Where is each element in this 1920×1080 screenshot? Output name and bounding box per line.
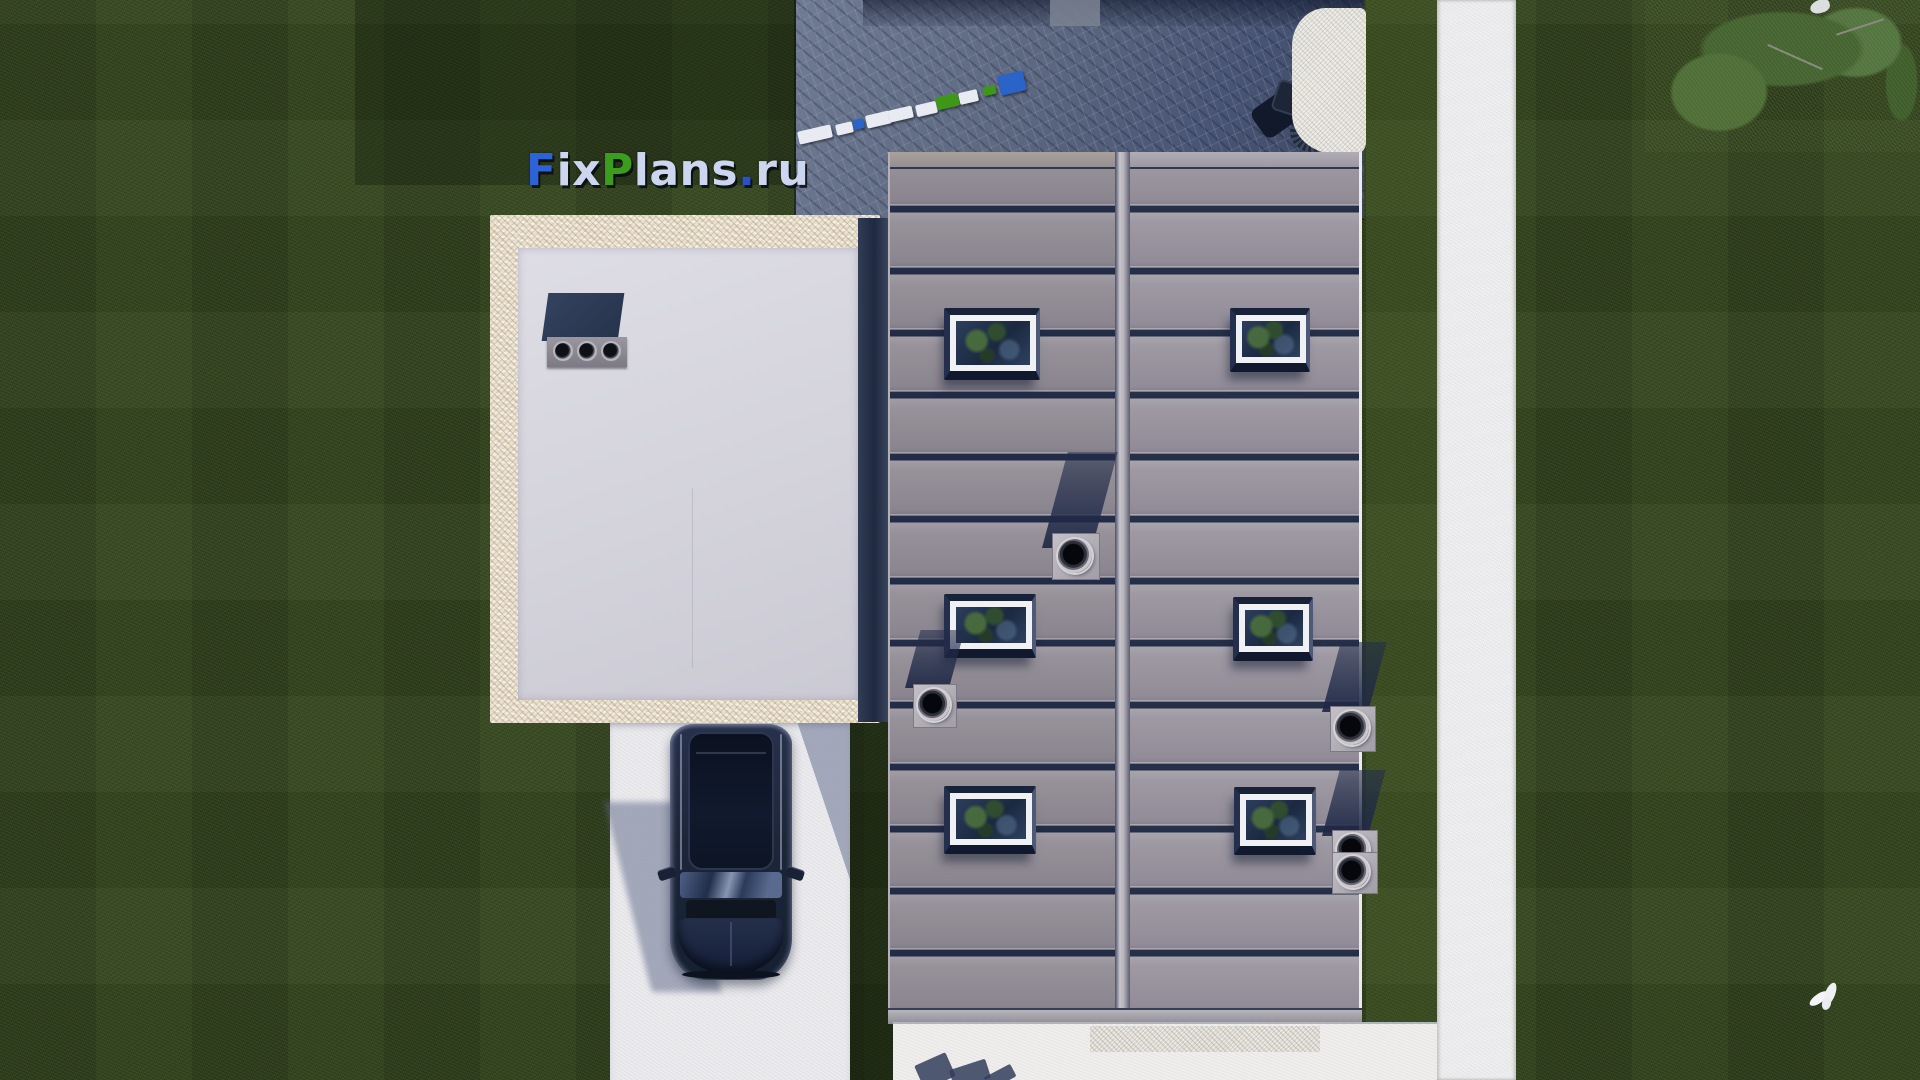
patio-shade-band	[863, 0, 1364, 26]
skylight	[1234, 787, 1316, 855]
flying-bird-icon	[1808, 982, 1854, 1018]
garden-path	[1437, 0, 1516, 1080]
paver-block	[835, 121, 854, 136]
vent-pipe	[1058, 539, 1092, 573]
car-windshield	[680, 872, 782, 898]
gravel-bed	[1292, 8, 1366, 154]
roof-ridge-divider	[1115, 152, 1130, 1008]
vent-pipe	[1335, 711, 1369, 745]
paver-block	[935, 93, 960, 111]
terrace-shadow	[914, 1052, 956, 1080]
terrace	[893, 1022, 1437, 1080]
garage-flat-roof	[490, 215, 880, 723]
vent-pipe	[918, 689, 950, 721]
watermark-logo: FixPlans.ru	[526, 149, 809, 193]
skylight-glass	[1246, 800, 1306, 840]
paver-block	[915, 101, 938, 117]
paver-block	[852, 118, 865, 130]
paver-block	[958, 89, 979, 105]
skylight	[1233, 597, 1313, 661]
aerial-house-render: FixPlans.ru	[0, 0, 1920, 1080]
garden-tree	[1645, 0, 1920, 152]
vent-pipe	[1337, 856, 1369, 888]
terrace-gravel-strip	[1090, 1026, 1320, 1052]
skylight-glass	[1245, 610, 1303, 646]
paver-block	[888, 105, 914, 122]
grass-shade-strip	[850, 722, 893, 1080]
watermark-part: ix	[557, 145, 601, 196]
watermark-part: ru	[755, 145, 809, 196]
skylight-glass	[956, 799, 1026, 839]
chimney-front-face	[547, 337, 627, 367]
skylight	[944, 308, 1040, 380]
car	[664, 722, 798, 982]
watermark-part: P	[601, 145, 634, 196]
skylight	[944, 786, 1036, 854]
skylight-glass	[956, 321, 1030, 365]
patio-step-mat	[1050, 0, 1100, 26]
metal-roof-right-section	[1130, 152, 1362, 1008]
roof-shadow-gap	[858, 218, 888, 722]
lawn-strip-highlight	[1366, 0, 1437, 1080]
watermark-part: lans	[634, 145, 738, 196]
paver-block	[997, 70, 1027, 95]
chimney-vent-icon	[577, 341, 597, 361]
car-roof-rail	[780, 734, 782, 870]
chimney-vent-icon	[601, 341, 621, 361]
skylight	[1230, 308, 1310, 372]
car-roof-glass	[688, 732, 774, 870]
car-roof-rail	[680, 734, 682, 870]
watermark-part: F	[526, 145, 557, 196]
paver-block	[797, 124, 833, 144]
driveway	[610, 722, 850, 1080]
skylight-glass	[956, 607, 1026, 643]
tree-branch	[1767, 44, 1823, 70]
tree-branch	[1836, 18, 1884, 35]
chimney	[545, 293, 631, 369]
car-front-bumper	[682, 970, 780, 979]
chimney-vent-icon	[553, 341, 573, 361]
skylight-glass	[1242, 321, 1300, 357]
watermark-part: .	[738, 145, 755, 196]
car-cowl	[686, 900, 776, 920]
chimney-top-face	[542, 293, 625, 341]
paver-block	[982, 85, 997, 97]
metal-roof-left-section	[888, 152, 1115, 1008]
